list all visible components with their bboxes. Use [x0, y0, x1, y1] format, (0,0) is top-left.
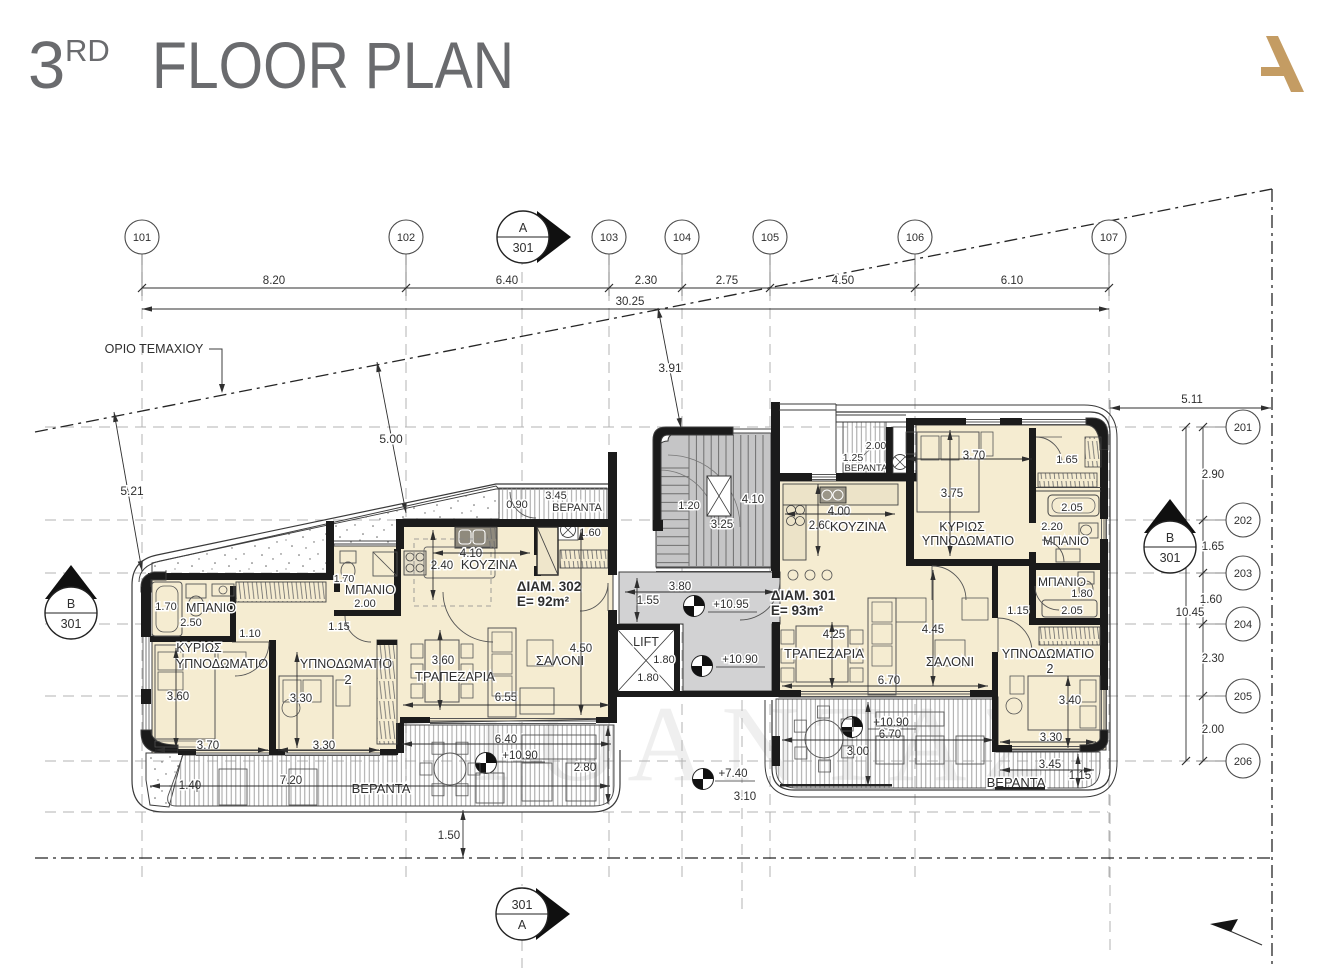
svg-text:E= 92m²: E= 92m²: [517, 594, 570, 609]
svg-text:205: 205: [1234, 691, 1252, 703]
svg-text:ΚΟΥΖΙΝΑ: ΚΟΥΖΙΝΑ: [830, 519, 887, 534]
svg-text:B: B: [67, 597, 75, 611]
svg-text:5.00: 5.00: [379, 432, 403, 446]
svg-text:1.10: 1.10: [239, 628, 260, 640]
svg-text:ΜΠΑΝΙΟ: ΜΠΑΝΙΟ: [1043, 536, 1089, 548]
svg-text:3.00: 3.00: [847, 746, 869, 758]
svg-text:+10.95: +10.95: [713, 599, 749, 611]
svg-text:ΔΙΑΜ. 301: ΔΙΑΜ. 301: [771, 588, 836, 603]
svg-text:+10.90: +10.90: [722, 654, 758, 666]
svg-text:ΥΠΝΟΔΩΜΑΤΙΟ: ΥΠΝΟΔΩΜΑΤΙΟ: [922, 534, 1014, 548]
svg-text:301: 301: [513, 241, 534, 255]
svg-text:1.65: 1.65: [1056, 454, 1077, 466]
svg-text:4.10: 4.10: [742, 494, 764, 506]
svg-text:ΤΡΑΠΕΖΑΡΙΑ: ΤΡΑΠΕΖΑΡΙΑ: [784, 646, 864, 661]
svg-text:2.60: 2.60: [809, 520, 831, 532]
svg-text:1.60: 1.60: [1200, 594, 1222, 606]
svg-text:1.65: 1.65: [1202, 541, 1224, 553]
svg-text:2.30: 2.30: [1202, 653, 1224, 665]
svg-text:5.11: 5.11: [1181, 394, 1203, 406]
svg-text:1.80: 1.80: [1071, 588, 1092, 600]
svg-text:301: 301: [1160, 551, 1181, 565]
svg-text:ΚΥΡΙΩΣ: ΚΥΡΙΩΣ: [939, 520, 985, 534]
svg-text:103: 103: [600, 232, 618, 244]
svg-text:204: 204: [1234, 619, 1252, 631]
svg-text:FLOOR PLAN: FLOOR PLAN: [152, 28, 514, 102]
svg-text:10.45: 10.45: [1176, 607, 1205, 619]
svg-text:1.15: 1.15: [1007, 605, 1028, 617]
svg-text:6.70: 6.70: [878, 675, 900, 687]
svg-text:ΔΙΑΜ. 302: ΔΙΑΜ. 302: [517, 579, 581, 594]
svg-text:ΚΟΥΖΙΝΑ: ΚΟΥΖΙΝΑ: [461, 557, 518, 572]
svg-text:A: A: [518, 918, 527, 932]
svg-text:101: 101: [133, 232, 151, 244]
svg-text:2.00: 2.00: [354, 598, 375, 610]
svg-text:ΜΠΑΝΙΟ: ΜΠΑΝΙΟ: [1038, 575, 1086, 589]
svg-text:3: 3: [28, 28, 65, 103]
svg-text:203: 203: [1234, 568, 1252, 580]
svg-text:3.45: 3.45: [1039, 759, 1061, 771]
svg-text:+7.40: +7.40: [718, 768, 747, 780]
svg-text:2.30: 2.30: [635, 275, 657, 287]
svg-text:A: A: [519, 221, 528, 235]
svg-text:3.80: 3.80: [669, 581, 691, 593]
svg-text:+10.90: +10.90: [873, 717, 909, 729]
svg-text:6.40: 6.40: [496, 275, 518, 287]
svg-text:2: 2: [344, 672, 351, 687]
svg-text:301: 301: [512, 898, 533, 912]
svg-text:3.70: 3.70: [963, 450, 985, 462]
svg-text:4.00: 4.00: [828, 506, 850, 518]
svg-text:1.80: 1.80: [637, 672, 658, 684]
svg-text:2.05: 2.05: [1061, 502, 1082, 514]
svg-text:104: 104: [673, 232, 691, 244]
svg-text:3.40: 3.40: [1059, 695, 1081, 707]
svg-text:3.45: 3.45: [545, 490, 566, 502]
svg-text:ΥΠΝΟΔΩΜΑΤΙΟ: ΥΠΝΟΔΩΜΑΤΙΟ: [1002, 647, 1094, 661]
svg-text:2.50: 2.50: [180, 617, 201, 629]
svg-text:105: 105: [761, 232, 779, 244]
svg-text:2.90: 2.90: [1202, 469, 1224, 481]
svg-text:2.75: 2.75: [716, 275, 738, 287]
svg-text:RD: RD: [65, 33, 110, 68]
svg-text:ΟΡΙΟ ΤΕΜΑΧΙΟΥ: ΟΡΙΟ ΤΕΜΑΧΙΟΥ: [105, 342, 204, 356]
svg-text:ΚΥΡΙΩΣ: ΚΥΡΙΩΣ: [176, 641, 222, 655]
svg-text:107: 107: [1100, 232, 1118, 244]
svg-text:301: 301: [61, 617, 82, 631]
svg-text:ΜΠΑΝΙΟ: ΜΠΑΝΙΟ: [345, 583, 395, 597]
svg-text:3.91: 3.91: [658, 361, 682, 375]
svg-text:3.30: 3.30: [290, 693, 312, 705]
svg-text:2.05: 2.05: [1061, 605, 1082, 617]
svg-text:1.70: 1.70: [155, 601, 176, 613]
svg-text:2: 2: [1047, 662, 1054, 676]
svg-text:ΥΠΝΟΔΩΜΑΤΙΟ: ΥΠΝΟΔΩΜΑΤΙΟ: [176, 657, 268, 671]
svg-text:5.21: 5.21: [120, 484, 144, 498]
svg-text:E= 93m²: E= 93m²: [771, 603, 824, 618]
svg-text:1.50: 1.50: [438, 830, 460, 842]
svg-text:2.20: 2.20: [1041, 521, 1062, 533]
svg-text:1.55: 1.55: [637, 595, 659, 607]
svg-text:202: 202: [1234, 515, 1252, 527]
svg-text:6.70: 6.70: [879, 729, 901, 741]
svg-text:3.60: 3.60: [432, 655, 454, 667]
svg-text:6.10: 6.10: [1001, 275, 1023, 287]
svg-text:+10.90: +10.90: [502, 750, 538, 762]
svg-text:106: 106: [906, 232, 924, 244]
svg-text:ΒΕΡΑΝΤΑ: ΒΕΡΑΝΤΑ: [552, 502, 602, 514]
svg-text:1.20: 1.20: [678, 500, 699, 512]
svg-text:8.20: 8.20: [263, 275, 285, 287]
svg-text:ΒΕΡΑΝΤΑ: ΒΕΡΑΝΤΑ: [845, 463, 889, 474]
svg-text:LIFT: LIFT: [633, 635, 659, 649]
svg-text:B: B: [1166, 531, 1174, 545]
svg-text:2.00: 2.00: [866, 440, 887, 452]
svg-text:2.40: 2.40: [431, 560, 453, 572]
svg-text:3.10: 3.10: [734, 791, 756, 803]
svg-text:ΒΕΡΑΝΤΑ: ΒΕΡΑΝΤΑ: [352, 781, 411, 796]
svg-text:ΜΠΑΝΙΟ: ΜΠΑΝΙΟ: [186, 601, 236, 615]
svg-text:201: 201: [1234, 422, 1252, 434]
svg-text:3.60: 3.60: [167, 691, 189, 703]
svg-text:4.50: 4.50: [832, 275, 854, 287]
svg-text:2.80: 2.80: [574, 762, 596, 774]
svg-text:1.15: 1.15: [328, 621, 349, 633]
svg-text:ΤΡΑΠΕΖΑΡΙΑ: ΤΡΑΠΕΖΑΡΙΑ: [415, 669, 495, 684]
svg-text:1.80: 1.80: [653, 654, 674, 666]
svg-text:102: 102: [397, 232, 415, 244]
svg-text:2.00: 2.00: [1202, 724, 1224, 736]
svg-text:3.25: 3.25: [711, 519, 733, 531]
svg-text:3.75: 3.75: [941, 488, 963, 500]
svg-text:206: 206: [1234, 756, 1252, 768]
svg-text:30.25: 30.25: [616, 296, 645, 308]
svg-text:7.20: 7.20: [280, 775, 302, 787]
svg-text:6.55: 6.55: [495, 692, 517, 704]
